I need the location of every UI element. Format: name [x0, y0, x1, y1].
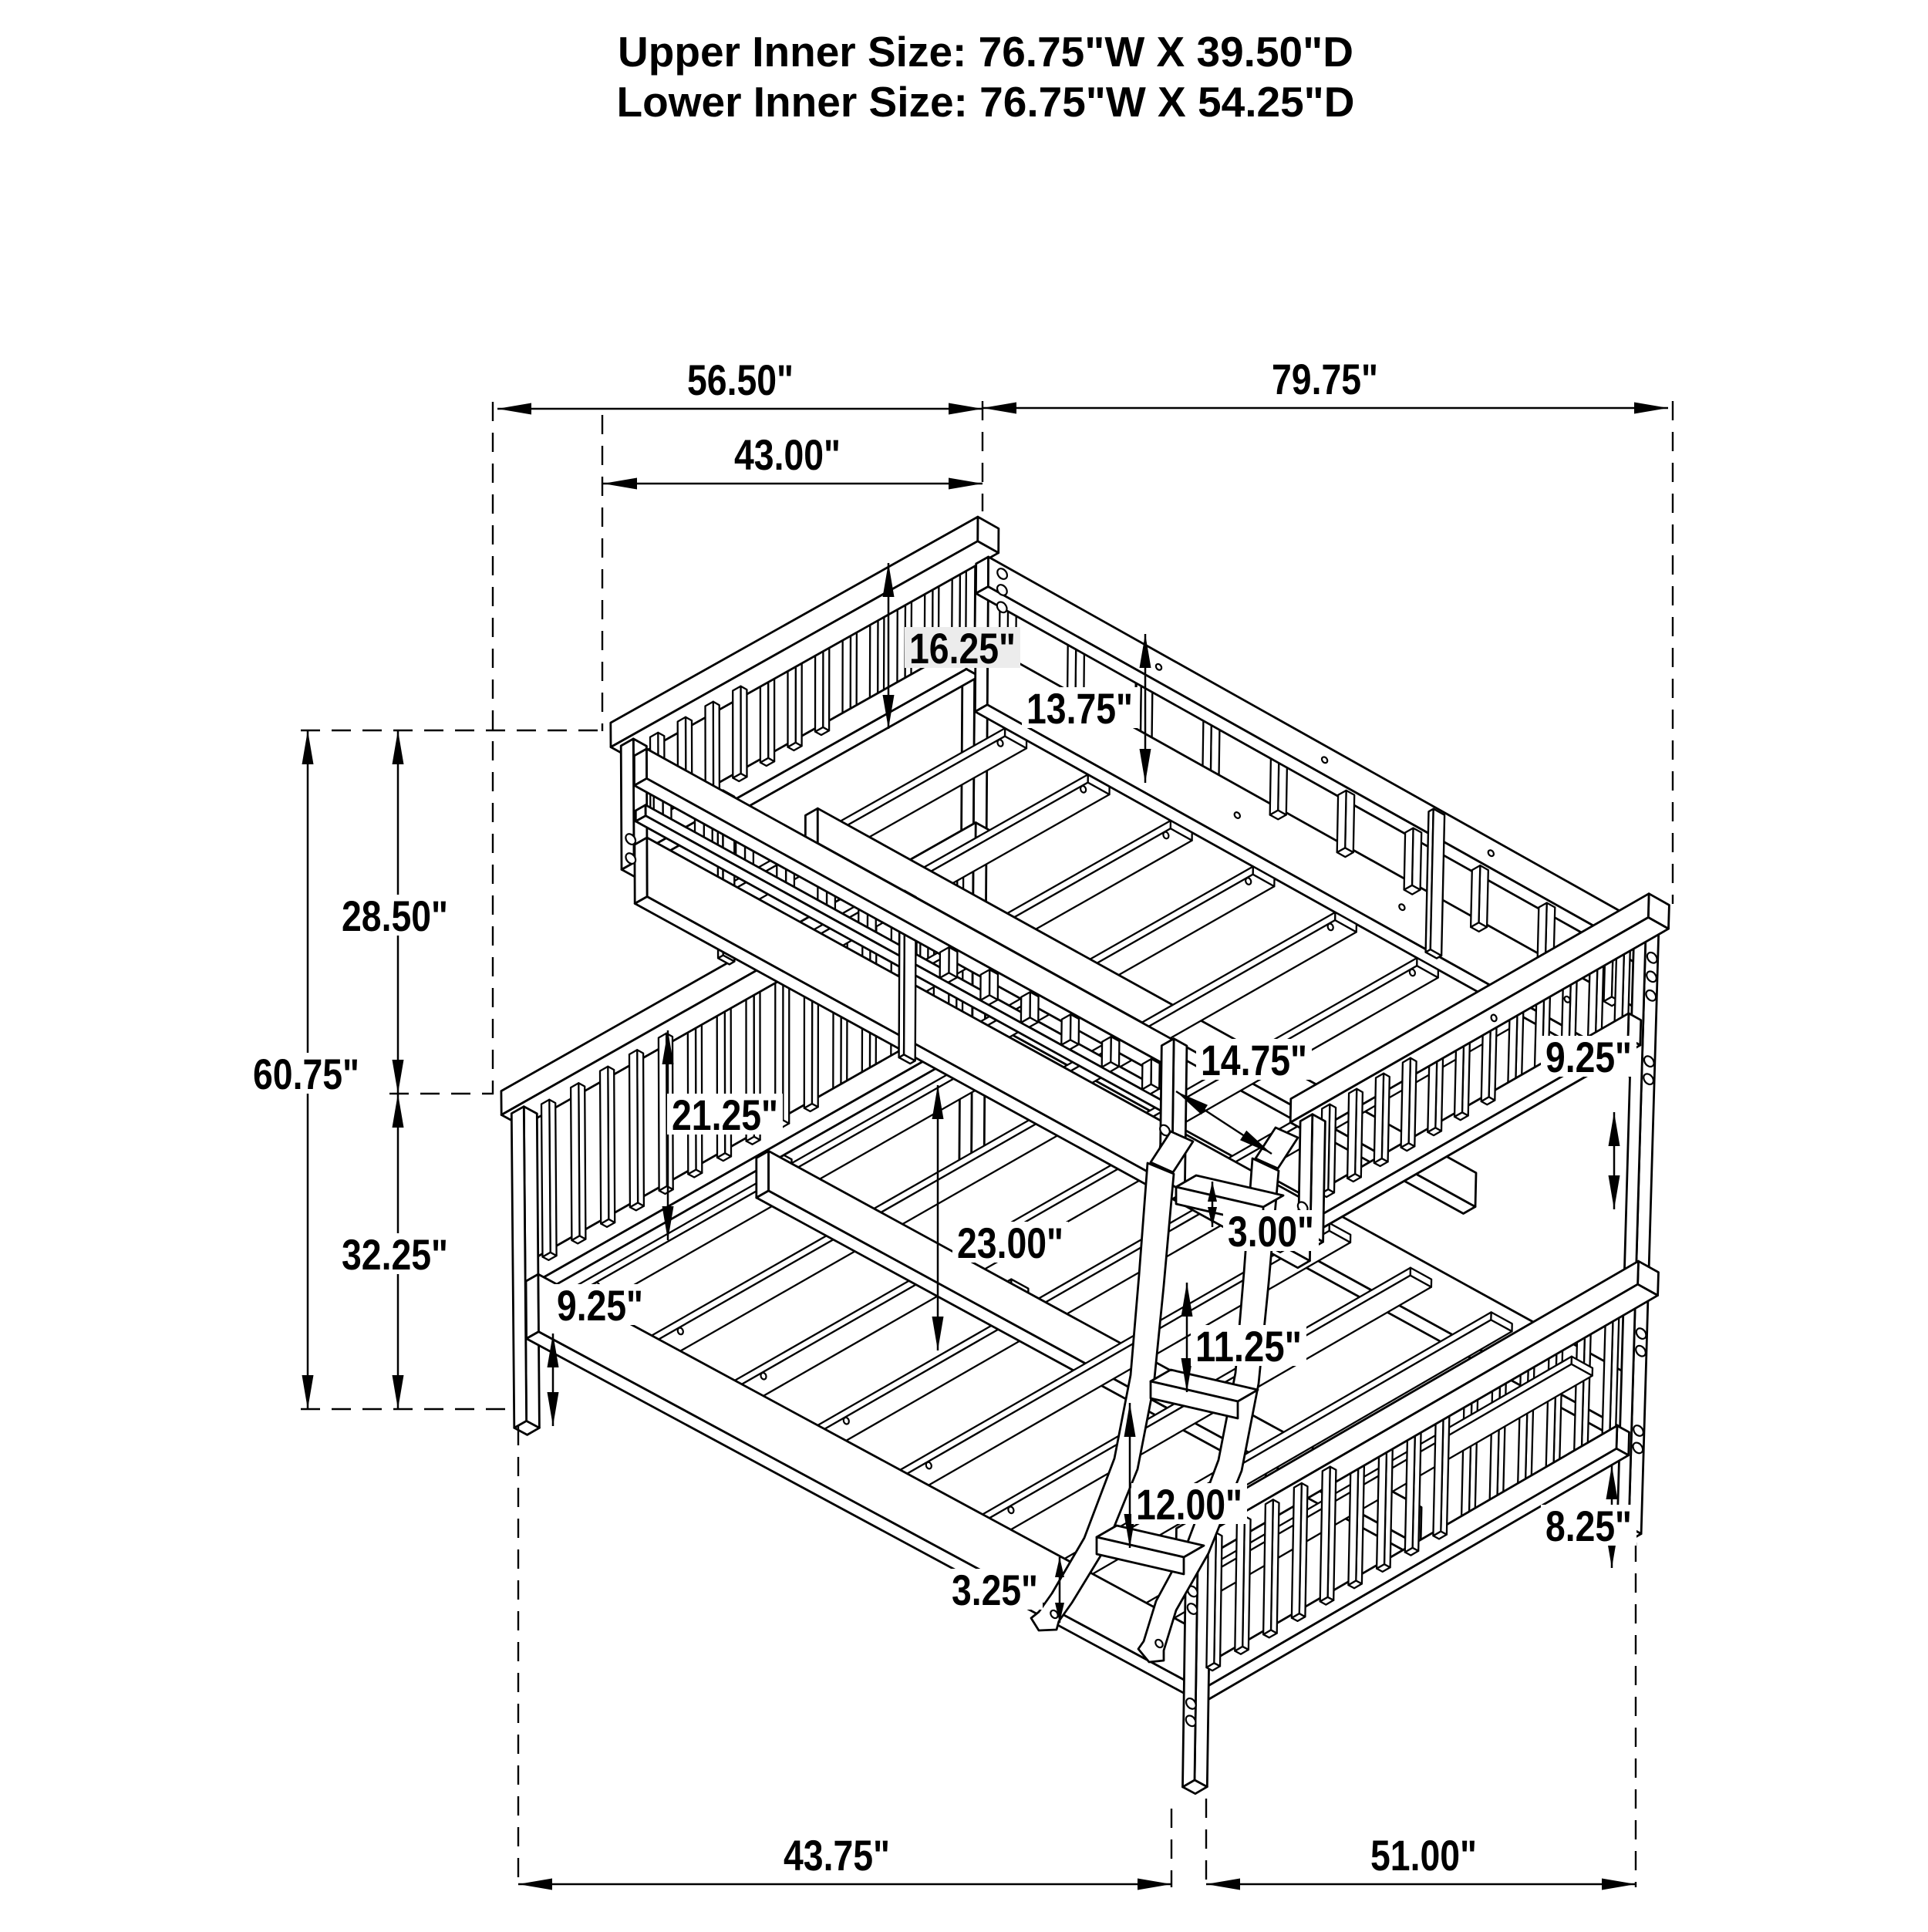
svg-text:16.25": 16.25" [909, 624, 1016, 673]
svg-text:3.25": 3.25" [952, 1566, 1038, 1614]
svg-text:43.75": 43.75" [784, 1831, 890, 1880]
svg-text:Lower Inner Size: 76.75"W X 54: Lower Inner Size: 76.75"W X 54.25"D [617, 78, 1355, 126]
svg-text:56.50": 56.50" [687, 356, 794, 404]
svg-text:3.00": 3.00" [1228, 1207, 1314, 1256]
svg-text:12.00": 12.00" [1136, 1480, 1242, 1529]
svg-text:21.25": 21.25" [672, 1091, 778, 1139]
svg-text:13.75": 13.75" [1026, 684, 1133, 733]
svg-text:11.25": 11.25" [1195, 1322, 1302, 1371]
svg-text:Upper Inner Size: 76.75"W X 39: Upper Inner Size: 76.75"W X 39.50"D [618, 28, 1353, 76]
svg-text:79.75": 79.75" [1272, 355, 1378, 403]
svg-text:9.25": 9.25" [1545, 1033, 1632, 1081]
svg-text:32.25": 32.25" [342, 1230, 448, 1279]
svg-text:43.00": 43.00" [734, 430, 841, 479]
svg-text:8.25": 8.25" [1545, 1502, 1632, 1550]
svg-text:9.25": 9.25" [557, 1281, 643, 1330]
svg-text:51.00": 51.00" [1370, 1831, 1477, 1880]
svg-text:14.75": 14.75" [1201, 1036, 1307, 1084]
svg-text:23.00": 23.00" [957, 1219, 1063, 1267]
svg-text:60.75": 60.75" [253, 1050, 359, 1098]
svg-text:28.50": 28.50" [342, 892, 448, 940]
